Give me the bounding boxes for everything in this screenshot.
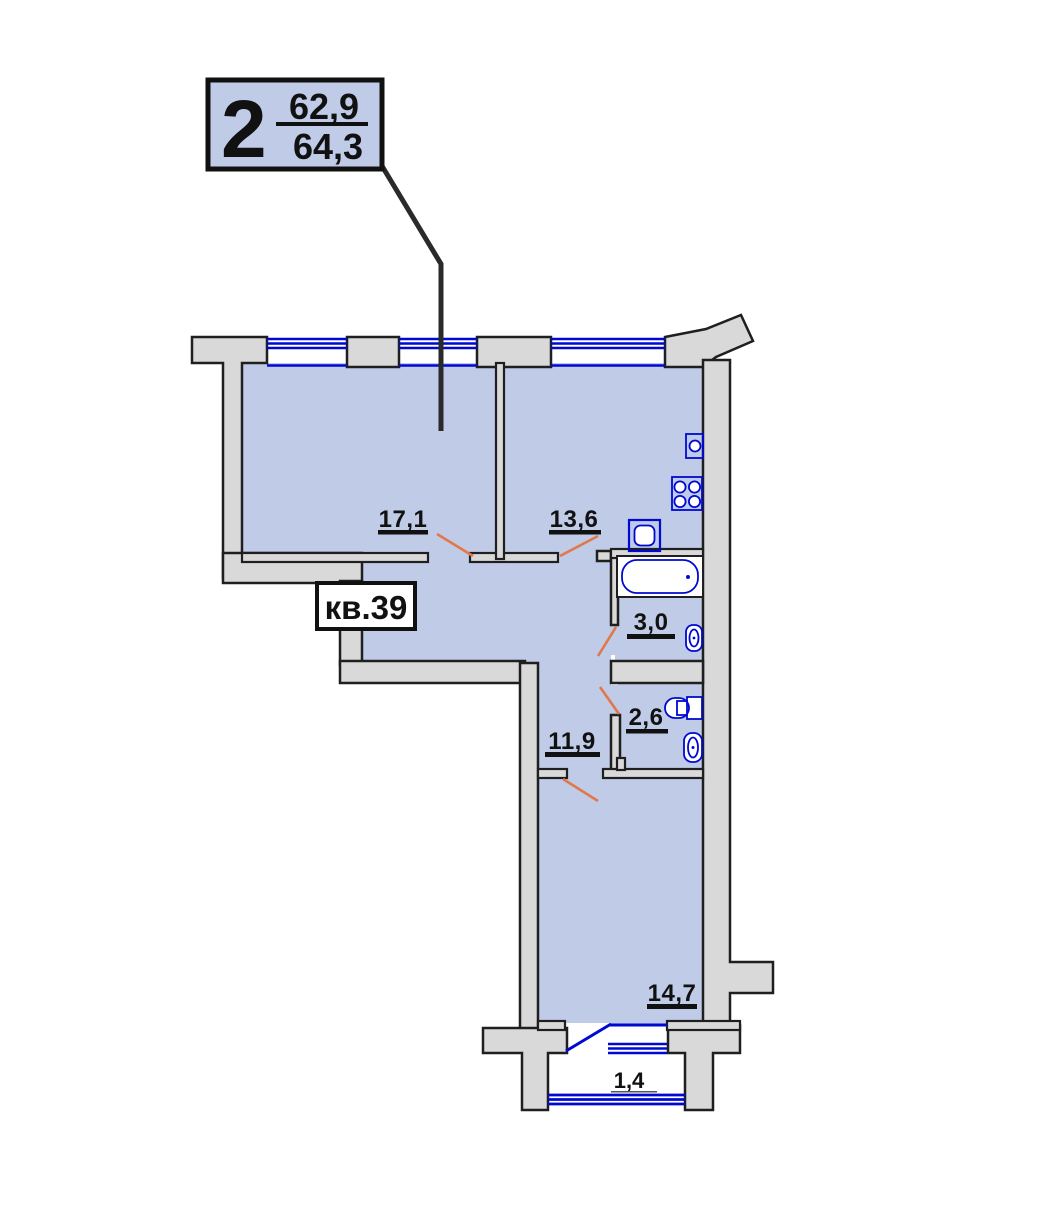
legend-box: 2 62,9 64,3 [208, 80, 382, 175]
legend-living-area: 62,9 [289, 86, 359, 127]
bedroom-area-underline [647, 1004, 697, 1009]
bedroom-area-label: 14,7 [648, 980, 697, 1007]
wall-tick-kitchen [597, 551, 611, 561]
wall-bedroom-top-left [538, 769, 567, 778]
wall-step-horizontal [340, 661, 525, 683]
hallway-area-label: 11,9 [548, 728, 595, 755]
kitchen-floor [504, 363, 703, 555]
living-area-label: 17,1 [379, 506, 428, 533]
living-area-underline [378, 530, 428, 535]
legend-room-count: 2 [221, 84, 267, 175]
balcony-wall-right [668, 1025, 740, 1110]
living-room-floor [242, 363, 498, 559]
balcony-area-label: 1,4 [614, 1068, 645, 1093]
wall-bedroom-bottom-left [538, 1021, 565, 1030]
apartment-number-plate: кв.39 [317, 583, 415, 629]
wall-pier-1 [347, 337, 399, 367]
toilet-area-underline [626, 729, 668, 734]
room-fills [242, 363, 703, 1030]
wall-under-kitchen [470, 553, 558, 562]
kitchen-area-underline [549, 530, 601, 535]
wall-toilet-corner [617, 758, 625, 770]
balcony-wall-left [483, 1028, 567, 1110]
toilet-icon [665, 697, 702, 719]
floorplan-page: 2 62,9 64,3 кв.39 17,1 13,6 3,0 2,6 11,9… [0, 0, 1048, 1209]
legend-total-area: 64,3 [293, 126, 363, 167]
bathroom-area-label: 3,0 [634, 609, 669, 636]
toilet-area-label: 2,6 [629, 704, 664, 731]
bathtub-icon [617, 556, 703, 597]
floorplan-canvas: 2 62,9 64,3 кв.39 17,1 13,6 3,0 2,6 11,9… [0, 0, 1048, 1209]
bathroom-area-underline [627, 634, 675, 639]
toilet-sink-icon [684, 733, 702, 762]
wall-right-outer [703, 360, 773, 1025]
wall-under-living [242, 553, 428, 562]
wall-pier-2 [477, 337, 551, 367]
bathroom-sink-icon [686, 625, 702, 651]
hallway-area-underline [545, 752, 600, 757]
kitchen-area-label: 13,6 [550, 506, 599, 533]
wall-bedroom-bottom-right [667, 1021, 740, 1030]
bedroom-door-opening [567, 770, 603, 778]
wall-left-lower [520, 663, 538, 1030]
vent-duct [611, 661, 703, 683]
apartment-number: кв.39 [325, 589, 408, 626]
balcony-area-underline [611, 1091, 657, 1093]
wall-living-kitchen [496, 363, 504, 559]
